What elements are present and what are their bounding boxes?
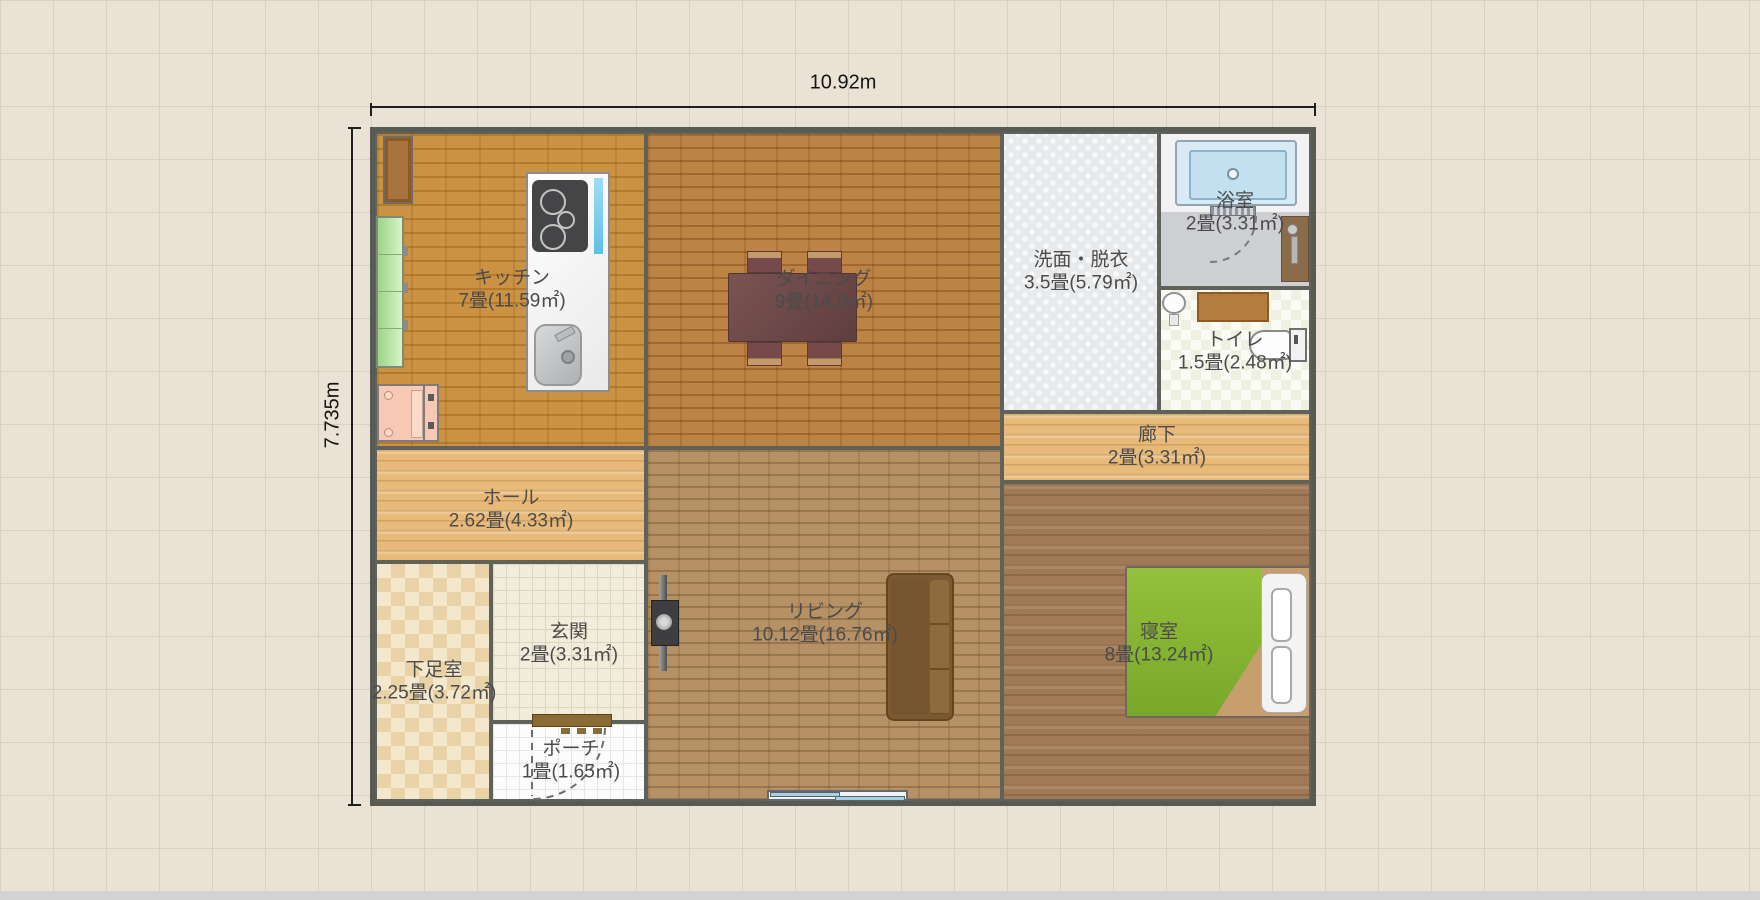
shelf-cell xyxy=(378,329,402,366)
bottom-edge-bar xyxy=(0,891,1760,900)
height-dimension-line xyxy=(351,127,353,806)
toilet-counter-shelf[interactable] xyxy=(1197,292,1269,322)
front-door-threshold xyxy=(561,728,607,734)
front-door[interactable] xyxy=(532,714,612,727)
shelf-cell xyxy=(378,218,402,255)
room-label-living: リビング10.12畳(16.76㎡) xyxy=(752,602,898,647)
room-label-washroom: 洗面・脱衣3.5畳(5.79㎡) xyxy=(1024,250,1138,295)
room-label-entrance: 玄関2畳(3.31㎡) xyxy=(520,622,618,667)
faucet-icon xyxy=(561,350,575,364)
kitchen-shelf-unit[interactable] xyxy=(376,216,404,368)
width-dimension-label: 10.92m xyxy=(810,72,877,95)
shower-head-icon xyxy=(1287,224,1298,235)
tv-lens-icon xyxy=(656,614,672,630)
sofa-seat xyxy=(891,579,929,715)
hand-basin-stand xyxy=(1169,314,1179,326)
refrigerator[interactable] xyxy=(377,384,439,442)
shelf-cell xyxy=(378,255,402,292)
pillow xyxy=(1271,646,1292,704)
window-pane xyxy=(770,792,840,797)
sliding-window[interactable] xyxy=(767,790,908,801)
window-pane xyxy=(835,796,905,801)
shelf-cell xyxy=(378,292,402,329)
hand-basin[interactable] xyxy=(1162,292,1186,314)
room-label-corridor: 廊下2畳(3.31㎡) xyxy=(1108,425,1206,470)
bathtub-drain-icon xyxy=(1227,168,1239,180)
toilet-flush-handle-icon xyxy=(1294,335,1298,344)
height-dimension-label: 7.735m xyxy=(322,382,345,449)
burner-icon xyxy=(540,224,566,250)
room-label-toilet: トイレ1.5畳(2.48㎡) xyxy=(1178,330,1292,375)
pillow xyxy=(1271,588,1292,642)
gas-stove[interactable] xyxy=(532,180,588,252)
room-label-bedroom: 寝室8畳(13.24㎡) xyxy=(1105,622,1214,667)
room-label-hall: ホール2.62畳(4.33㎡) xyxy=(449,488,574,533)
refrigerator-door-panel xyxy=(411,390,423,438)
stove-glass-screen xyxy=(594,178,603,254)
floorplan-canvas: 10.92m 7.735m xyxy=(0,0,1760,900)
width-dimension-line xyxy=(370,106,1316,108)
sofa[interactable] xyxy=(886,573,954,721)
refrigerator-handle-column xyxy=(423,386,437,440)
room-label-dining: ダイニング9畳(14.9㎡) xyxy=(775,269,873,314)
room-label-kitchen: キッチン7畳(11.59㎡) xyxy=(458,268,565,313)
dining-chair[interactable] xyxy=(747,342,782,366)
room-label-shoe-room: 下足室2.25畳(3.72㎡) xyxy=(372,660,497,705)
floor-plan[interactable]: キッチン7畳(11.59㎡) ダイニング9畳(14.9㎡) 洗面・脱衣3.5畳(… xyxy=(370,127,1316,806)
room-label-porch: ポーチ1畳(1.65㎡) xyxy=(522,739,620,784)
kitchen-wall-cabinet[interactable] xyxy=(383,136,413,204)
dining-chair[interactable] xyxy=(807,342,842,366)
shower-bar-icon xyxy=(1291,236,1298,264)
sofa-back-cushions xyxy=(930,580,949,714)
room-label-bathroom: 浴室2畳(3.31㎡) xyxy=(1186,191,1284,236)
